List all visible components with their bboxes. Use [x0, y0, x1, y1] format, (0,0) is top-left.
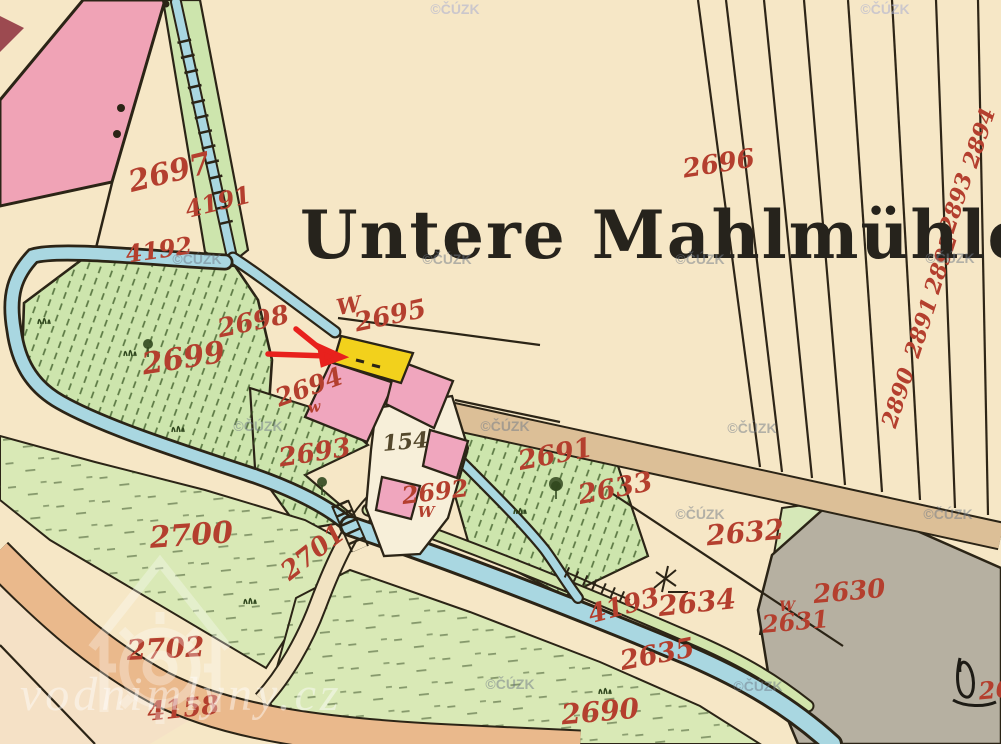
cuzk-watermark: ©ČÚZK: [675, 250, 724, 267]
cuzk-watermark: ©ČÚZK: [675, 505, 724, 522]
cadastral-map-svg: 26974191419226962698W269526992694w269315…: [0, 0, 1001, 744]
parcel-label-26: 26: [976, 674, 1001, 706]
cuzk-watermark: ©ČÚZK: [233, 417, 282, 434]
cuzk-watermark: ©ČÚZK: [923, 505, 972, 522]
cuzk-watermark: ©ČÚZK: [860, 0, 909, 17]
cuzk-watermark: ©ČÚZK: [172, 250, 221, 267]
cadastral-map-viewport: 26974191419226962698W269526992694w269315…: [0, 0, 1001, 744]
cuzk-watermark: ©ČÚZK: [733, 677, 782, 694]
cuzk-watermark: ©ČÚZK: [727, 419, 776, 436]
parcel-label-W: W: [418, 503, 437, 521]
parcel-label-2690: 2690: [559, 692, 641, 732]
site-watermark-text: vodnimlyny.cz: [20, 668, 343, 721]
cuzk-watermark: ©ČÚZK: [422, 250, 471, 267]
parcel-label-2631: 2631: [760, 604, 830, 639]
map-title: Untere Mahlmühle: [300, 196, 1001, 274]
cuzk-watermark: ©ČÚZK: [925, 249, 974, 266]
parcel-label-2700: 2700: [147, 515, 234, 556]
cuzk-watermark: ©ČÚZK: [430, 0, 479, 17]
cuzk-watermark: ©ČÚZK: [480, 417, 529, 434]
cuzk-watermark: ©ČÚZK: [485, 675, 534, 692]
house-number-label-154: 154: [381, 427, 429, 457]
